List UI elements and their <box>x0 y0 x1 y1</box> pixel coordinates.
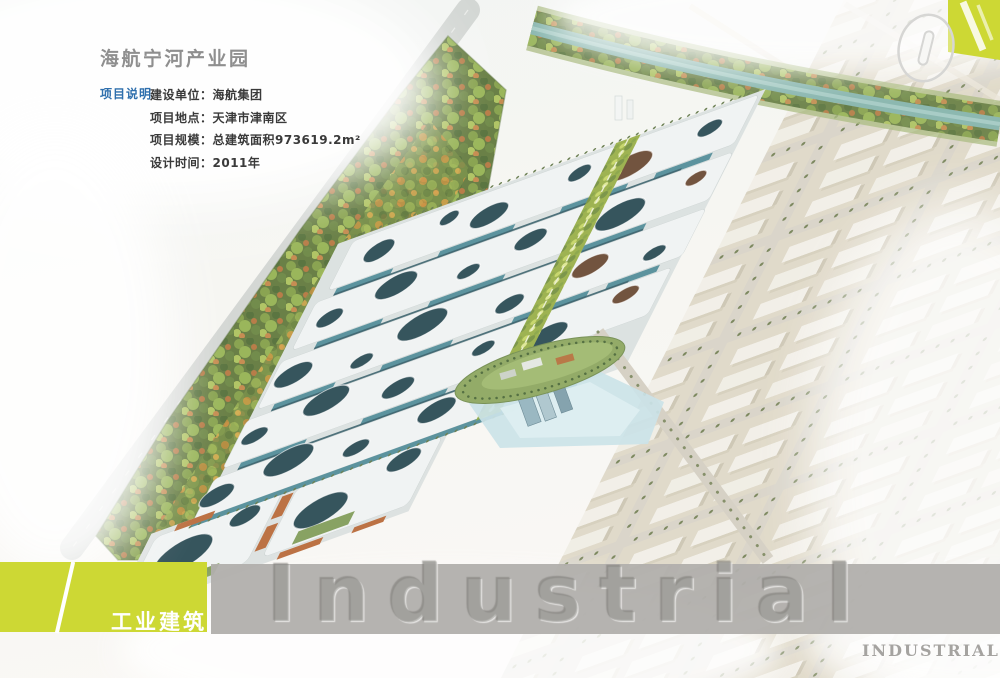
detail-design-date: 设计时间：2011年 <box>150 152 361 175</box>
industrial-stamp: INDUSTRIAL <box>862 641 1000 660</box>
detail-scale: 项目规模：总建筑面积973619.2m² <box>150 129 361 152</box>
detail-construction-unit: 建设单位：海航集团 <box>150 84 361 107</box>
page-number-graphic <box>888 0 1000 95</box>
detail-location: 项目地点：天津市津南区 <box>150 107 361 130</box>
watermark-text: Industrial <box>267 550 871 620</box>
page-number: 01 <box>888 0 1000 95</box>
page-title: 海航宁河产业园 <box>100 44 251 71</box>
project-details: 建设单位：海航集团 项目地点：天津市津南区 项目规模：总建筑面积973619.2… <box>150 84 361 174</box>
footer-band: Industrial <box>211 564 1000 634</box>
category-label: 工业建筑 <box>111 606 207 636</box>
portfolio-page: 海航宁河产业园 项目说明 建设单位：海航集团 项目地点：天津市津南区 项目规模：… <box>0 0 1000 678</box>
section-label: 项目说明 <box>100 85 152 102</box>
